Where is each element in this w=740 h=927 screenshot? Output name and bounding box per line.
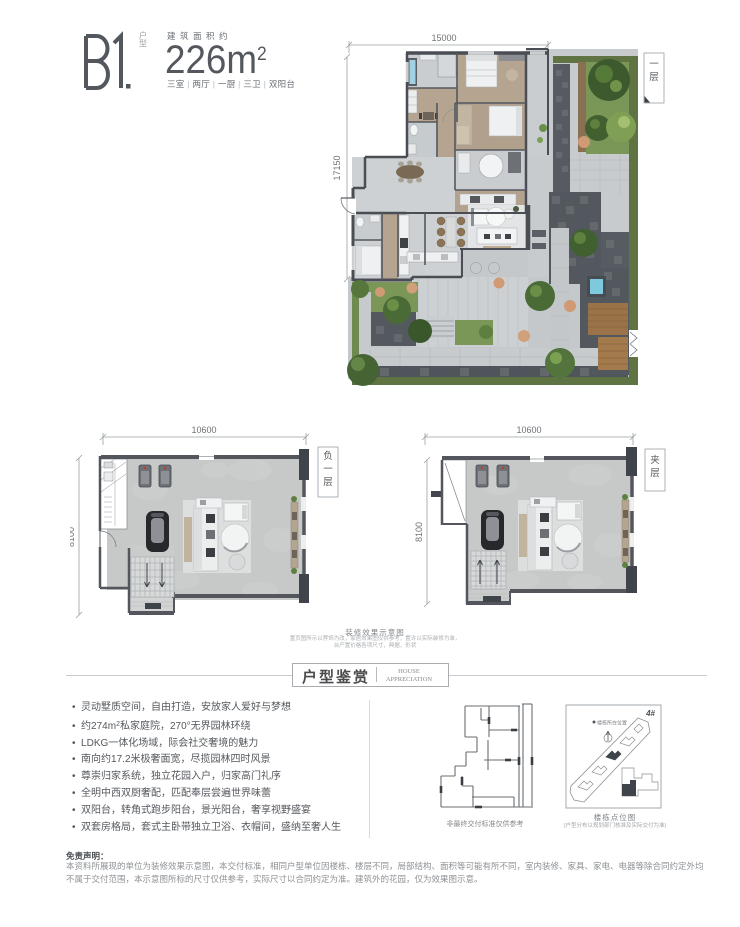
svg-text:8100: 8100 xyxy=(70,527,76,547)
svg-text:10600: 10600 xyxy=(191,425,216,435)
svg-text:17150: 17150 xyxy=(332,155,342,180)
svg-text:4#: 4# xyxy=(645,709,655,718)
svg-text:10600: 10600 xyxy=(516,425,541,435)
svg-text:15000: 15000 xyxy=(431,33,456,43)
svg-text:楼栋所在位置: 楼栋所在位置 xyxy=(597,720,627,727)
svg-text:负一层: 负一层 xyxy=(323,450,333,488)
svg-text:8100: 8100 xyxy=(415,522,424,542)
